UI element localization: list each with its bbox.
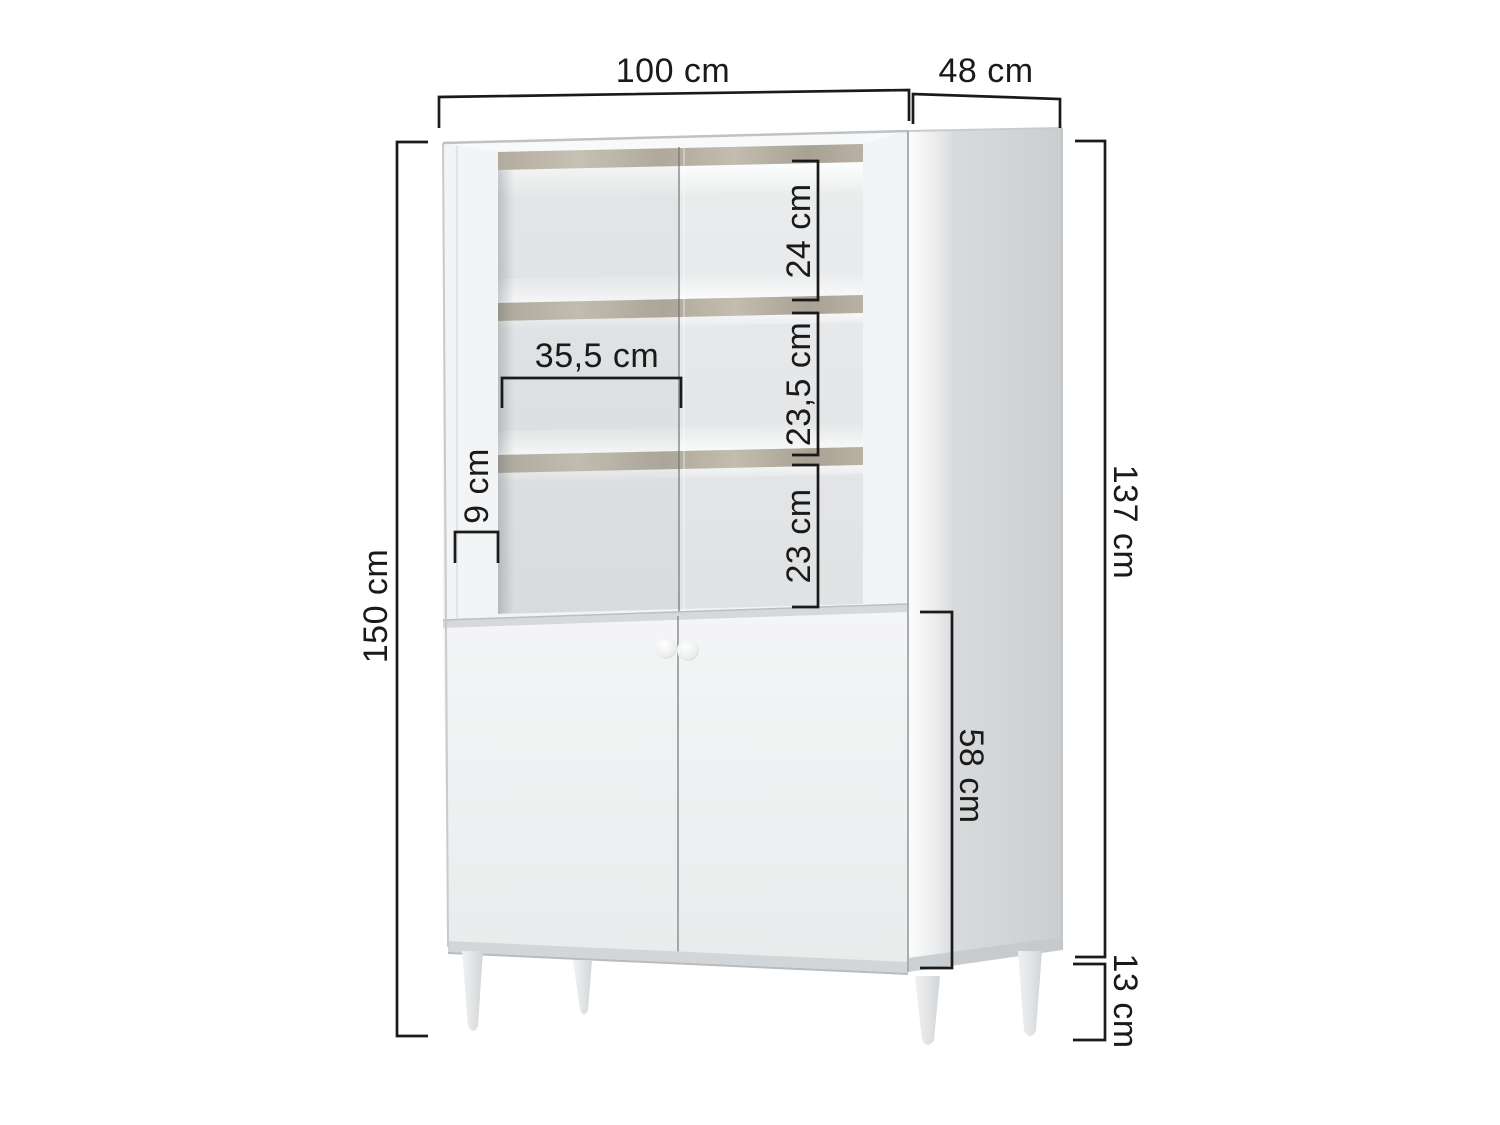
dim-total-height-label: 150 cm xyxy=(357,549,395,664)
dim-width-bracket xyxy=(439,90,909,128)
dim-middle-compartment: 23,5 cm xyxy=(780,313,818,455)
door-knob-right xyxy=(677,639,699,661)
dim-body-height: 137 cm xyxy=(1075,141,1144,957)
leg-rear-right xyxy=(1018,951,1042,1036)
dim-total-height-bracket xyxy=(397,142,428,1036)
product-dimension-image: 100 cm 48 cm 150 cm 137 cm 13 cm 58 cm xyxy=(0,0,1500,1125)
dim-leg-height: 13 cm xyxy=(1073,953,1144,1048)
front-frame-right-stile xyxy=(863,131,908,610)
base-doors xyxy=(443,612,908,962)
dim-body-height-label: 137 cm xyxy=(1106,465,1144,580)
dim-leg-height-label: 13 cm xyxy=(1106,953,1144,1048)
dimension-diagram-canvas: 100 cm 48 cm 150 cm 137 cm 13 cm 58 cm xyxy=(0,0,1500,1125)
dim-depth-bracket xyxy=(913,94,1060,128)
dim-depth-label: 48 cm xyxy=(938,52,1033,90)
dim-width-label: 100 cm xyxy=(616,52,731,90)
dim-top-compartment-label: 24 cm xyxy=(780,183,818,278)
dim-frame-width-label: 9 cm xyxy=(458,448,496,524)
dim-depth: 48 cm xyxy=(913,52,1060,128)
cabinet-render xyxy=(443,128,1062,1045)
leg-front-left xyxy=(462,951,483,1031)
dim-door-section-label: 58 cm xyxy=(952,728,990,823)
dim-body-height-bracket xyxy=(1075,141,1105,957)
dim-leg-height-bracket xyxy=(1073,964,1105,1040)
dim-width: 100 cm xyxy=(439,52,909,128)
dim-inner-width-label: 35,5 cm xyxy=(535,337,659,375)
dim-total-height: 150 cm xyxy=(357,142,428,1036)
front-frame-left-stile xyxy=(443,143,498,620)
glass-door-left-tint xyxy=(498,148,679,614)
dim-middle-compartment-label: 23,5 cm xyxy=(780,322,818,446)
cabinet-side-edge-highlight xyxy=(908,129,954,972)
leg-front-right xyxy=(915,976,940,1045)
door-knob-left xyxy=(655,637,677,659)
dim-bottom-compartment-label: 23 cm xyxy=(780,488,818,583)
leg-rear-left xyxy=(573,960,592,1015)
